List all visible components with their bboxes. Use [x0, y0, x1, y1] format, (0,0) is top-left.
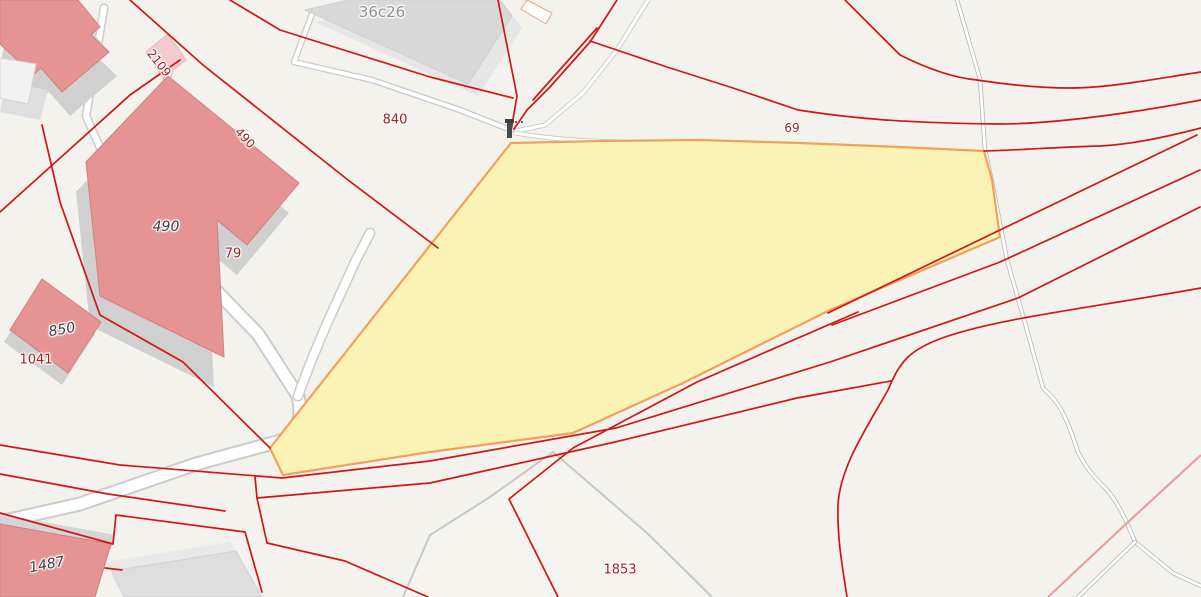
- chimney-flue: [507, 122, 512, 138]
- chimney-icon: [505, 119, 523, 141]
- chimney-cap: [505, 119, 514, 123]
- map-layers: [0, 0, 1201, 597]
- map-canvas[interactable]: 36c26 2109 490 840 490 79 850 1041 1487 …: [0, 0, 1201, 597]
